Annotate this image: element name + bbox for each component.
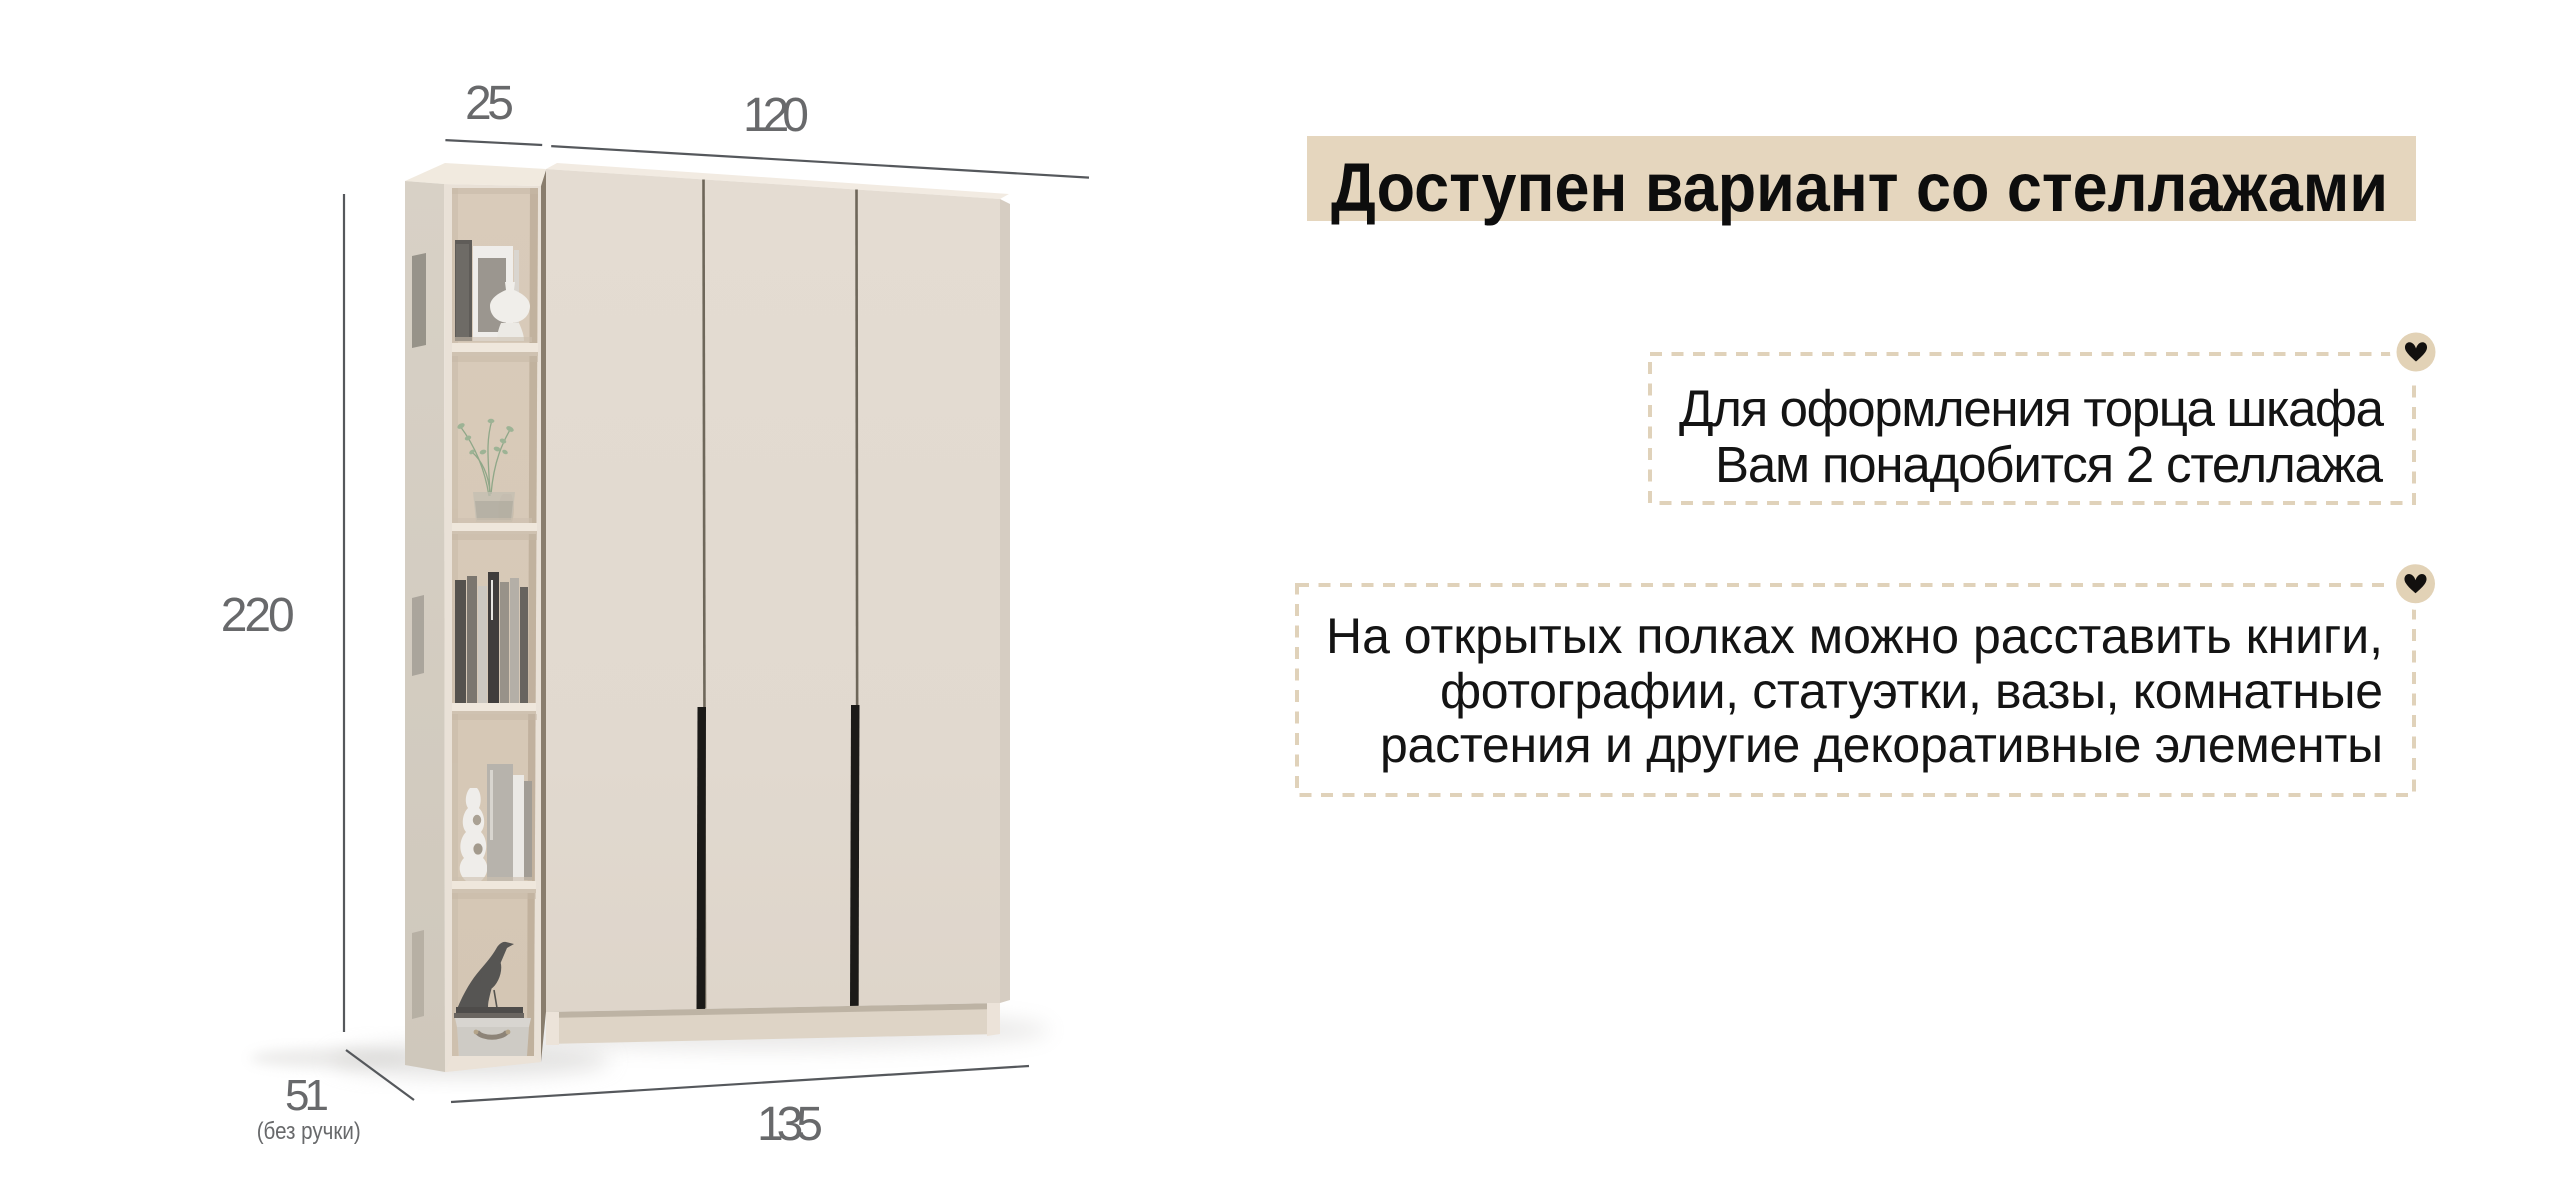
- svg-text:135: 135: [757, 1098, 823, 1151]
- svg-text:На открытых полках можно расст: На открытых полках можно расставить книг…: [1326, 608, 2383, 664]
- svg-text:51: 51: [285, 1071, 329, 1120]
- svg-text:растения и другие декоративные: растения и другие декоративные элементы: [1380, 717, 2383, 773]
- svg-text:220: 220: [221, 589, 295, 642]
- svg-text:25: 25: [465, 77, 514, 130]
- svg-text:фотографии, статуэтки, вазы, к: фотографии, статуэтки, вазы, комнатные: [1440, 663, 2383, 719]
- svg-text:(без ручки): (без ручки): [257, 1118, 361, 1145]
- svg-text:120: 120: [743, 89, 809, 142]
- svg-text:Вам понадобится 2 стеллажа: Вам понадобится 2 стеллажа: [1715, 436, 2384, 493]
- svg-text:Доступен вариант со стеллажами: Доступен вариант со стеллажами: [1331, 149, 2388, 226]
- svg-text:Для оформления торца шкафа: Для оформления торца шкафа: [1679, 380, 2385, 437]
